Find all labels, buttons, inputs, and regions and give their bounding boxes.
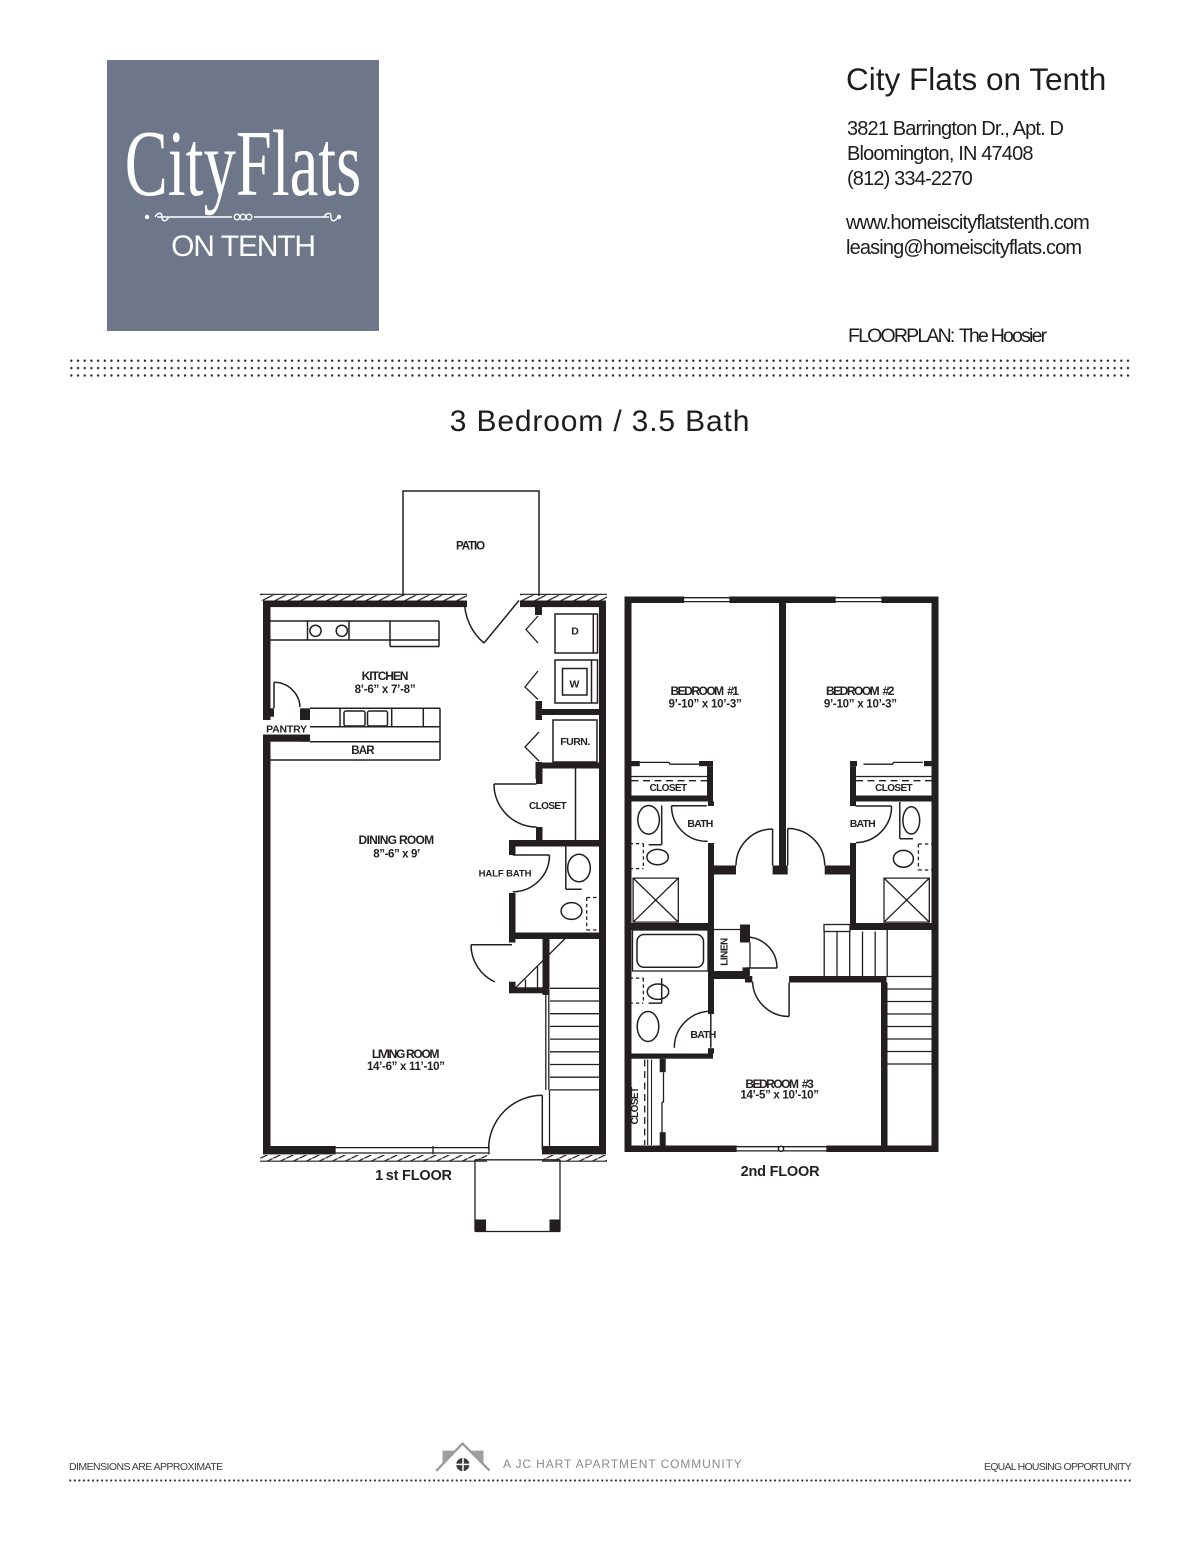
svg-text:9’-10” x 10’-3”: 9’-10” x 10’-3”	[669, 699, 742, 711]
svg-text:BEDROOM #1: BEDROOM #1	[671, 684, 740, 698]
svg-text:KITCHEN: KITCHEN	[362, 669, 408, 683]
svg-text:2nd FLOOR: 2nd FLOOR	[741, 1164, 820, 1180]
svg-text:CLOSET: CLOSET	[875, 783, 912, 794]
svg-text:PATIO: PATIO	[456, 541, 485, 553]
svg-text:LINEN: LINEN	[720, 938, 731, 966]
svg-text:HALF BATH: HALF BATH	[479, 869, 532, 880]
svg-text:CLOSET: CLOSET	[529, 801, 566, 812]
svg-text:9’-10” x 10’-3”: 9’-10” x 10’-3”	[824, 699, 897, 711]
svg-text:PANTRY: PANTRY	[266, 724, 307, 736]
svg-text:14’-5” x 10’-10”: 14’-5” x 10’-10”	[740, 1090, 818, 1102]
svg-text:LIVING ROOM: LIVING ROOM	[372, 1047, 440, 1061]
svg-text:W: W	[570, 679, 580, 691]
svg-text:1 st FLOOR: 1 st FLOOR	[375, 1168, 452, 1184]
svg-text:CLOSET: CLOSET	[630, 1087, 641, 1124]
svg-text:8”-6” x 9’: 8”-6” x 9’	[373, 849, 420, 861]
svg-text:BATH: BATH	[687, 818, 712, 830]
svg-text:BEDROOM #2: BEDROOM #2	[826, 684, 895, 698]
svg-text:8’-6” x 7’-8”: 8’-6” x 7’-8”	[355, 684, 416, 696]
svg-text:BATH: BATH	[690, 1029, 715, 1041]
svg-text:14’-6” x 11’-10”: 14’-6” x 11’-10”	[367, 1061, 445, 1073]
svg-text:CLOSET: CLOSET	[650, 783, 687, 794]
svg-text:D: D	[571, 626, 579, 638]
svg-text:DINING ROOM: DINING ROOM	[359, 833, 435, 847]
svg-text:BATH: BATH	[850, 818, 875, 830]
svg-text:BAR: BAR	[351, 745, 375, 757]
svg-text:FURN.: FURN.	[560, 736, 590, 748]
